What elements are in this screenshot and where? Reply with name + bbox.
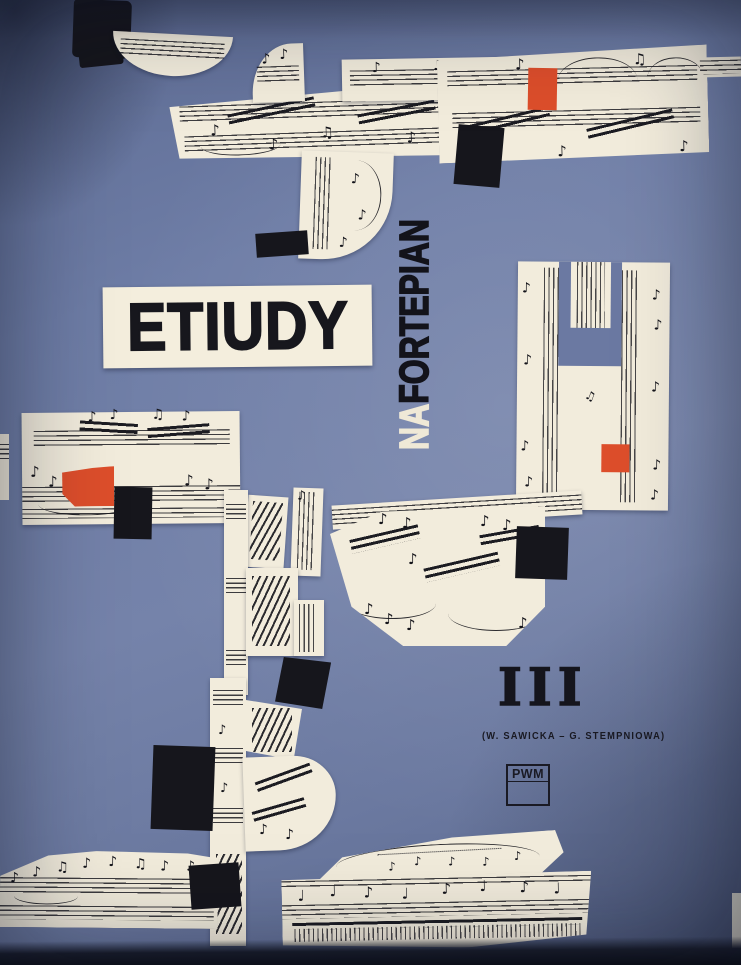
subtitle-vertical: NAFORTEPIAN	[386, 192, 442, 450]
photo-bottom-edge	[0, 936, 741, 965]
title-text: ETIUDY	[126, 287, 348, 366]
music-bit-e	[246, 700, 302, 760]
beam	[252, 797, 307, 823]
diagonal-beams	[252, 708, 292, 752]
staff-lines-vertical	[299, 604, 317, 652]
staff-lines	[0, 905, 214, 921]
note-glyph	[134, 857, 147, 871]
music-fan	[330, 506, 545, 646]
note-glyph	[285, 828, 294, 842]
note-glyph	[479, 879, 486, 894]
note-glyph	[651, 381, 660, 395]
note-glyph	[583, 388, 597, 403]
staff-lines	[213, 690, 243, 707]
staff-lines	[120, 38, 225, 61]
note-glyph	[184, 473, 194, 488]
staff-lines	[226, 504, 246, 521]
authors-line: (W. SAWICKA – G. STEMPNIOWA)	[482, 731, 687, 742]
note-glyph	[523, 353, 532, 367]
red-square-top	[528, 68, 558, 110]
note-glyph	[480, 514, 490, 529]
note-glyph	[298, 889, 305, 904]
subtitle-text: NAFORTEPIAN	[391, 219, 438, 450]
music-bit-c	[246, 568, 298, 656]
music-piece-curved	[242, 754, 337, 851]
note-glyph	[515, 57, 525, 72]
subtitle-prefix: NA	[391, 404, 437, 450]
note-glyph	[540, 622, 550, 637]
note-glyph	[82, 857, 91, 871]
note-glyph	[633, 52, 647, 67]
diagonal-beams	[252, 576, 290, 646]
column-strip-upper	[224, 490, 248, 695]
note-glyph	[519, 880, 529, 895]
black-square-right	[515, 526, 569, 580]
note-glyph	[378, 512, 388, 527]
note-glyph	[520, 439, 529, 453]
note-glyph	[48, 475, 58, 490]
black-square-bottom	[189, 862, 242, 909]
black-bar-small	[255, 230, 309, 258]
note-glyph	[218, 724, 226, 737]
note-glyph	[151, 408, 164, 422]
black-square-left	[114, 487, 153, 540]
staff-lines	[257, 65, 300, 83]
note-glyph	[329, 884, 336, 899]
note-glyph	[679, 139, 689, 154]
note-glyph	[406, 618, 416, 633]
note-glyph	[441, 882, 451, 897]
music-strip-edge-sliver	[700, 56, 741, 77]
note-glyph	[32, 865, 41, 879]
slur	[557, 56, 638, 105]
red-shape-left	[62, 466, 114, 506]
note-glyph	[522, 281, 531, 295]
subtitle-rotated: NAFORTEPIAN	[386, 192, 442, 450]
note-glyph	[357, 208, 366, 222]
music-block-right	[516, 261, 670, 510]
book-cover: ETIUDY NAFORTEPIAN	[0, 0, 741, 965]
music-band-bottom-left	[0, 847, 218, 929]
note-glyph	[557, 144, 567, 159]
publisher-logo-text: PWM	[508, 766, 548, 782]
note-glyph	[653, 319, 662, 333]
black-rect-bottom-left	[151, 745, 216, 831]
note-glyph	[351, 172, 360, 186]
note-glyph	[108, 855, 117, 869]
note-glyph	[87, 410, 96, 424]
note-glyph	[401, 887, 408, 902]
note-glyph	[652, 289, 661, 303]
note-glyph	[402, 516, 412, 531]
diagonal-beams	[249, 501, 283, 561]
note-glyph	[372, 61, 381, 75]
note-glyph	[652, 459, 661, 473]
red-square-right	[601, 444, 629, 472]
curve	[329, 159, 382, 231]
staff-lines	[0, 444, 9, 461]
note-glyph	[553, 881, 560, 896]
note-glyph	[388, 860, 396, 872]
staff-lines-vertical	[312, 157, 331, 250]
note-glyph	[408, 552, 418, 567]
note-glyph	[363, 885, 373, 900]
note-glyph	[448, 855, 456, 867]
music-bit-a	[244, 495, 289, 570]
note-glyph	[160, 859, 169, 873]
note-glyph	[220, 782, 228, 795]
note-glyph	[320, 125, 334, 140]
volume-numeral: III	[498, 658, 578, 722]
staff-lines	[700, 59, 741, 74]
staff-lines	[282, 899, 592, 919]
black-square-top	[453, 124, 504, 188]
beam	[423, 552, 500, 583]
black-square-center	[275, 657, 332, 710]
note-glyph	[524, 475, 533, 489]
slur	[348, 588, 436, 619]
slur	[647, 57, 704, 99]
music-strip-descender	[298, 150, 394, 261]
music-strip-arch	[251, 43, 305, 103]
music-bit-d	[294, 600, 324, 656]
staff-lines-vertical	[577, 262, 606, 328]
staff-lines	[226, 650, 246, 667]
subtitle-main: FORTEPIAN	[391, 219, 437, 404]
staff-lines-vertical	[542, 268, 560, 504]
note-glyph	[259, 823, 268, 837]
note-glyph	[338, 236, 347, 250]
staff-lines	[213, 808, 243, 825]
publisher-logo-box: PWM	[506, 764, 550, 806]
note-glyph	[650, 489, 659, 503]
note-glyph	[482, 855, 490, 867]
staff-lines	[213, 748, 243, 765]
music-bit-b	[290, 488, 323, 577]
edge-sliver-left	[0, 434, 9, 500]
inner-strip	[571, 262, 612, 328]
slur	[14, 887, 78, 905]
note-glyph	[56, 861, 69, 875]
slur	[448, 596, 544, 631]
staff-lines	[226, 578, 246, 595]
note-glyph	[10, 871, 19, 885]
note-glyph	[109, 408, 118, 422]
music-strip-ellipse	[111, 31, 233, 79]
note-glyph	[513, 850, 521, 862]
note-glyph	[30, 465, 40, 480]
note-glyph	[297, 490, 306, 503]
beam	[255, 763, 314, 795]
note-glyph	[406, 130, 416, 145]
title-box: ETIUDY	[103, 285, 373, 369]
note-glyph	[414, 855, 422, 867]
note-glyph	[204, 477, 214, 492]
note-glyph	[279, 48, 288, 62]
note-glyph	[181, 409, 190, 423]
note-glyph	[502, 518, 512, 533]
note-glyph	[261, 52, 270, 66]
